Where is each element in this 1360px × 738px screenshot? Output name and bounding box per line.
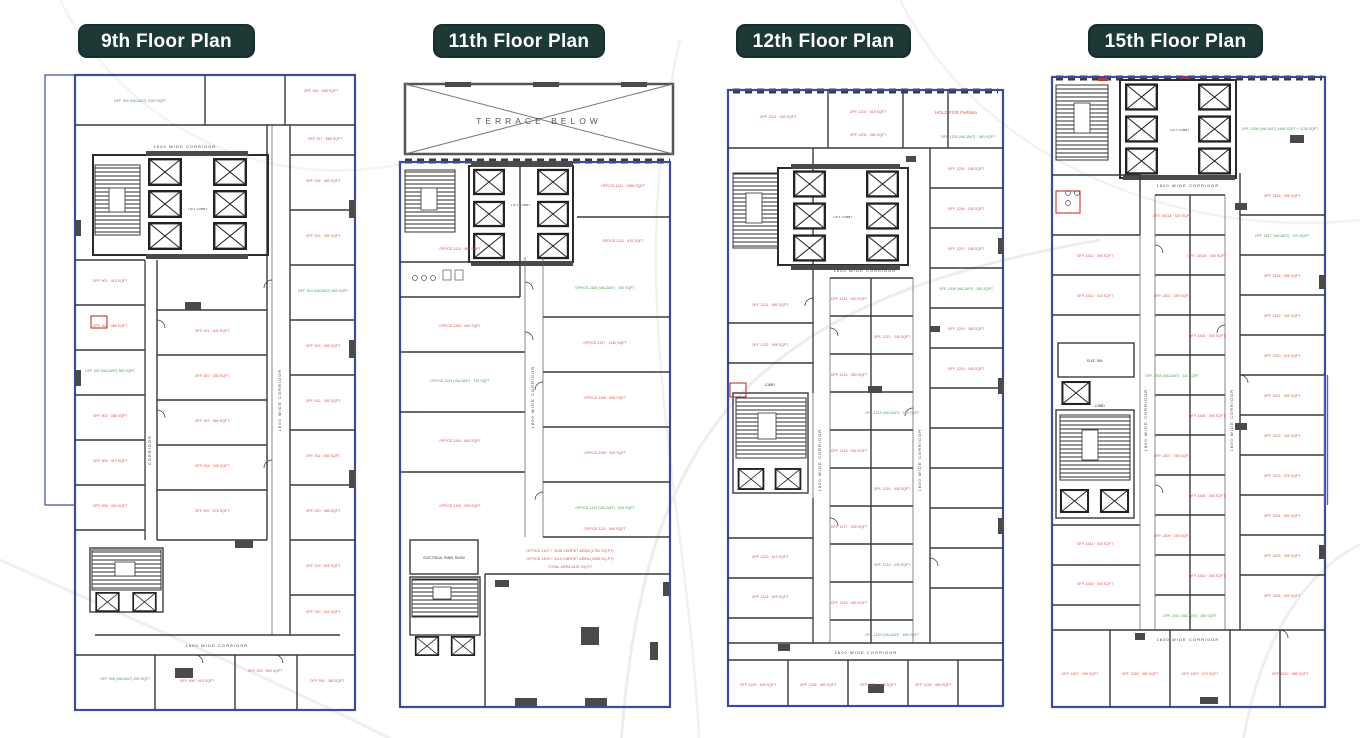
lift-lobby-label: LIFT LOBBY [188,207,208,211]
floor-plan-drawing-15th: LIFT LOBBY ELEC. RM. LOBBY 1800 WIDE COR… [1040,75,1332,712]
room-label: OFF. 1507 · 280 SQFT [1154,454,1191,458]
electrical-room: ELEC. RM. [1058,343,1134,404]
room-label: OFF. 1528 · 360 SQFT [1122,672,1159,676]
room-label: OFF. 1202 · 415 SQFT [850,110,887,114]
room-label: OFF. 908 (VACANT) 390 SQFT [100,677,151,681]
room-label: OFF. 1516 · 355 SQFT [1264,194,1301,198]
room-label: OFF. 1219 · 450 SQFT [831,601,868,605]
lift-shaft-icon [149,159,181,185]
room-label: OFF. 1506 (VACANT) 1496 SQFT + 1136 SQFT [1242,127,1319,131]
room-label: OFF. 1204 · 360 SQFT [850,133,887,137]
corridor-label: 1800 WIDE CORRIDOR [918,429,922,492]
room-label: OFF. 1529 · 375 SQFT [1182,672,1219,676]
room-label: OFF. 905 · 410 SQFT [93,459,128,463]
room-label: OFF. 1221 · 480 SQFT [752,303,789,307]
room-label: OFF. 912 · 450 SQFT [306,399,341,403]
room-label: OFF. 924 · 345 SQFT [195,464,230,468]
room-label: OFF. 1511 (VACANT) · 280 SQFT [1163,614,1218,618]
lift-shaft-icon [149,223,181,249]
room-label: OFF. 1512 · 295 SQFT [1077,254,1114,258]
lift-shaft-icon [775,469,800,489]
room-label: OFF. 1213 · 360 SQFT [831,373,868,377]
lift-shaft-icon [416,637,439,656]
room-label: OFF. 1217 · 420 SQFT [831,525,868,529]
room-label: OFF. 1510 · 265 SQFT [1189,574,1226,578]
room-label: OFFICE-1107 · 1140 SQFT [583,341,627,345]
lift-shaft-icon [1126,84,1157,109]
doors [1155,245,1288,638]
restroom-fixtures [413,270,464,281]
lift-shaft-icon [538,234,568,258]
corridor-label: 1800 WIDE CORRIDOR [834,269,897,273]
room-label: OFF. 1209 · 365 SQFT [948,327,985,331]
corridor-label: 1800 WIDE CORRIDOR [1157,638,1220,642]
room-label: OFF. 920 · 520 SQFT [306,610,341,614]
room-label: OFF. 903 (VACANT) 390 SQFT [85,369,136,373]
corridor-labels: 1800 WIDE CORRIDOR 1800 WIDE CORRIDOR 18… [148,145,282,648]
room-label: OFFICE-1108 · 655 SQFT [584,396,627,400]
floor-plan-panel-9th: LIFT LOBBY 1800 WIDE CORRIDOR 1800 WIDE … [35,70,360,715]
room-label: OFF. 1501A · 320 SQFT [1153,214,1193,218]
terrace-below: TERRACE BELOW [405,82,673,154]
room-label: OFF. 1520 · 415 SQFT [1264,354,1301,358]
floor-plan-badge-11th: 11th Floor Plan [433,24,605,58]
room-label: OFF. 915 · 450 SQFT [306,234,341,238]
brochure-floor-plans-page: { "colors":{ "badge_bg":"#1d3936", "boun… [0,0,1360,738]
room-label: OFF. 1210 · 340 SQFT [948,367,985,371]
room-label: OFF. 1509 · 250 SQFT [1154,534,1191,538]
room-label: OFF. 1207 · 345 SQFT [948,247,985,251]
room-label: OFF. 923 · 360 SQFT [195,419,230,423]
hold-area-outline [1056,191,1080,213]
lift-shaft-icon [738,469,763,489]
lift-shaft-icon [452,637,475,656]
lift-shaft-icon [794,235,825,260]
room-label: OFF. 1223 · 510 SQFT [752,555,789,559]
room-label: OFF. 1214 (VACANT) · 375 SQFT [865,411,920,415]
room-label: OFF. 906 · 420 SQFT [93,504,128,508]
outer-boundary [400,162,670,707]
corridor-label: 1800 WIDE CORRIDOR [278,369,282,432]
room-label: OFF. 1513 · 310 SQFT [1077,294,1114,298]
room-label: OFF. 1526 · 420 SQFT [1264,594,1301,598]
room-label: OFFICE-1111 · 540 SQFT [584,527,626,531]
refuge-hatch-strip [45,75,75,505]
lobby-label: LOBBY [1095,404,1107,408]
room-label: OFF. 926 · 380 SQFT [310,679,345,683]
lift-shaft-icon [149,191,181,217]
corridor-label: 1800 WIDE CORRIDOR [531,366,535,429]
corridor-label: CORRIDOR [148,435,152,465]
room-label: OFF. 919 · 505 SQFT [306,564,341,568]
room-label: OFF. 907 · 575 SQFT [195,509,230,513]
room-label: OFF. 1205 · 345 SQFT [948,167,985,171]
room-label: OFF. 917 · 665 SQFT [308,137,343,141]
room-label: OFF. 921 · 340 SQFT [195,329,230,333]
room-label: OFFICE-1113 · 585 SQFT [439,247,481,251]
floor-plan-drawing-11th: TERRACE BELOW LIFT LOBBY ELECTRICAL PANE… [385,82,680,712]
floor-plan-badge-15th: 15th Floor Plan [1088,24,1263,58]
lift-shaft-icon [794,203,825,228]
room-label: OFFICE-1103 (VACANT) · 715 SQFT [430,379,490,383]
room-label: OFF. 1218 · 435 SQFT [874,563,911,567]
room-label: OFF. 1216 · 405 SQFT [874,487,911,491]
lift-shaft-icon [867,203,898,228]
corridor-label: 1800 WIDE CORRIDOR [1230,389,1234,452]
secondary-staircase: LOBBY [1056,404,1134,518]
corridor-label: 1800 WIDE CORRIDOR [1144,389,1148,452]
room-label: OFF. 1208 (VACANT) · 350 SQFT [939,287,994,291]
room-label: OFFICE-1102 · 640 SQFT [439,324,482,328]
lobby-label: LOBBY [765,383,777,387]
corridor-label: 1800 WIDE CORRIDOR [154,145,217,149]
room-label: OFF. 1523 · 375 SQFT [1264,474,1301,478]
area-annotation: OFFICE-1107 + 1108 CARPET AREA (2781 SQ.… [526,549,614,553]
room-label: OFFICE-1109 · 600 SQFT [584,451,627,455]
room-label: OFF. 914 (VACANT) 465 SQFT [298,289,349,293]
area-annotation: TOTAL AREA 5131 SQ.FT [548,565,593,569]
room-label: OFF. 1525 · 405 SQFT [1264,554,1301,558]
lift-shaft-icon [1061,490,1088,512]
doors [91,280,283,663]
room-label: OFF. 1206 · 330 SQFT [948,207,985,211]
elevator-core: LIFT LOBBY [93,151,268,259]
electrical-room-label: ELEC. RM. [1087,359,1103,363]
outer-boundary [1052,77,1325,707]
room-label: OFF. 925 · 600 SQFT [248,669,283,673]
room-label: OFF. 1211 · 330 SQFT [831,297,868,301]
corridor-label: 1800 WIDE CORRIDOR [835,651,898,655]
columns [495,580,669,706]
room-label: OFF. 1504 (VACANT) · 310 SQFT [1145,374,1200,378]
room-label: OFF. 916 · 450 SQFT [306,179,341,183]
lift-shaft-icon [1062,382,1089,404]
room-label: OFF. 1228 · 480 SQFT [915,683,952,687]
room-label: OFF. 909 · 410 SQFT [180,679,215,683]
room-label: OFF. 1201 · 430 SQFT [760,115,797,119]
room-label: OFF. 1215 · 390 SQFT [831,449,868,453]
restroom-fixtures [1056,191,1080,214]
lift-shaft-icon [794,171,825,196]
lift-shaft-icon [474,170,504,194]
room-label: OFF. 1518 · 385 SQFT [1264,274,1301,278]
room-label: OFF. 1522 · 340 SQFT [1264,434,1301,438]
lift-shaft-icon [538,170,568,194]
room-label: OFF. 1514 · 325 SQFT [1077,542,1114,546]
lift-lobby-label: LIFT LOBBY [511,203,531,207]
room-label: OFF. 1220 (VACANT) · 465 SQFT [865,633,920,637]
room-label: OFF. 1226 · 450 SQFT [800,683,837,687]
lift-shaft-icon [214,223,246,249]
room-label: OFFICE-1104 · 860 SQFT [439,439,482,443]
room-label: OFF. 1505 · 295 SQFT [1189,414,1226,418]
room-label: OFF. 913 · 450 SQFT [306,344,341,348]
room-label: OFF. 1519 · 400 SQFT [1264,314,1301,318]
room-label: OFFICE-1112 · 610 SQFT [602,239,644,243]
corridor-labels: 1800 WIDE CORRIDOR 1800 WIDE CORRIDOR 18… [818,269,922,655]
elevator-core: LIFT LOBBY [733,164,908,270]
lift-shaft-icon [1126,116,1157,141]
lift-shaft-icon [1199,116,1230,141]
corridor-label: 1800 WIDE CORRIDOR [818,429,822,492]
lift-shaft-icon [214,191,246,217]
lift-shaft-icon [867,235,898,260]
room-label: OFF. 904 · 385 SQFT [93,414,128,418]
area-annotation: OFFICE-1109 + 1110 CARPET AREA (2350 SQ.… [526,557,614,561]
lift-shaft-icon [474,234,504,258]
room-label: OFF. 1502 · 290 SQFT [1154,294,1191,298]
lift-shaft-icon [96,593,119,612]
lift-shaft-icon [214,159,246,185]
room-label: OFF. 1503 · 305 SQFT [1189,334,1226,338]
secondary-staircase [410,577,480,655]
room-label: OFF. 1224 · 525 SQFT [752,595,789,599]
room-label: OFF. 1501B · 305 SQFT [1188,254,1228,258]
lift-shaft-icon [1199,84,1230,109]
room-label: OFF. 918 · 645 SQFT [304,89,339,93]
room-label: OFF. 1530 · 480 SQFT [1272,672,1309,676]
outer-boundary [45,75,355,710]
room-label: OFF. 902 · 385 SQFT [93,324,128,328]
terrace-label: TERRACE BELOW [476,116,602,126]
lift-shaft-icon [867,171,898,196]
electrical-room: ELECTRICAL PANEL ROOM [410,540,478,574]
room-label: OFF. 922 · 355 SQFT [195,374,230,378]
lift-shaft-icon [133,593,156,612]
room-label: OFF. 1227 · 465 SQFT [860,683,897,687]
floor-plan-badge-12th: 12th Floor Plan [736,24,911,58]
annotation-block: OFFICE-1107 + 1108 CARPET AREA (2781 SQ.… [526,549,614,569]
floor-plan-badge-9th: 9th Floor Plan [78,24,255,58]
room-label: OFF. 1517 (VACANT) · 370 SQFT [1255,234,1310,238]
lift-shaft-icon [1199,148,1230,173]
lift-shaft-icon [538,202,568,226]
room-label: OFF. 900 (VACANT) 1050 SQFT [114,99,167,103]
room-label: OFF. 1508 · 265 SQFT [1189,494,1226,498]
room-label: OFF. 1524 · 390 SQFT [1264,514,1301,518]
room-label: OFFICE-1110 (VACANT) · 925 SQFT [575,506,635,510]
secondary-staircase [90,548,163,612]
room-label: OFF. 1527 · 345 SQFT [1062,672,1099,676]
room-label: OFFICE-1101 · 2485 SQFT [601,184,646,188]
electrical-room-label: ELECTRICAL PANEL ROOM [423,556,465,560]
lift-shaft-icon [474,202,504,226]
room-label: OFF. 911 · 465 SQFT [306,454,341,458]
room-label: OFFICE-1106 (VACANT) · 780 SQFT [575,286,635,290]
floor-plan-panel-15th: LIFT LOBBY ELEC. RM. LOBBY 1800 WIDE COR… [1040,75,1332,712]
room-label: OFF. 910 · 480 SQFT [306,509,341,513]
floor-plan-drawing-9th: LIFT LOBBY 1800 WIDE CORRIDOR 1800 WIDE … [35,70,360,715]
lift-lobby-label: LIFT LOBBY [1170,128,1190,132]
room-label: OFF. 901 · 410 SQFT [93,279,128,283]
hold-note: HOLD FOR Partition [935,110,977,115]
room-label: OFF. 1203 (VACANT) · 390 SQFT [941,135,996,139]
secondary-staircase: LOBBY [733,383,808,493]
floor-plan-panel-11th: TERRACE BELOW LIFT LOBBY ELECTRICAL PANE… [385,82,680,712]
room-label: OFF. 1521 · 430 SQFT [1264,394,1301,398]
room-label: OFF. 1212 · 345 SQFT [874,335,911,339]
lift-shaft-icon [1126,148,1157,173]
floor-plan-panel-12th: LIFT LOBBY LOBBY HOLD FOR Partition 1800… [718,88,1013,710]
room-label: OFF. 1225 · 540 SQFT [740,683,777,687]
corridor-labels: 1800 WIDE CORRIDOR [531,366,535,429]
room-label: OFF. 1222 · 495 SQFT [752,343,789,347]
corridor-label: 1800 WIDE CORRIDOR [1157,184,1220,188]
lift-lobby-label: LIFT LOBBY [833,215,853,219]
floor-plan-drawing-12th: LIFT LOBBY LOBBY HOLD FOR Partition 1800… [718,88,1013,710]
lift-shaft-icon [1101,490,1128,512]
elevator-core: LIFT LOBBY [1056,80,1236,180]
elevator-core: LIFT LOBBY [405,162,573,266]
room-label: OFF. 1515 · 340 SQFT [1077,582,1114,586]
room-label: OFFICE-1105 · 920 SQFT [439,504,482,508]
corridor-label: 1800 WIDE CORRIDOR [186,644,249,648]
